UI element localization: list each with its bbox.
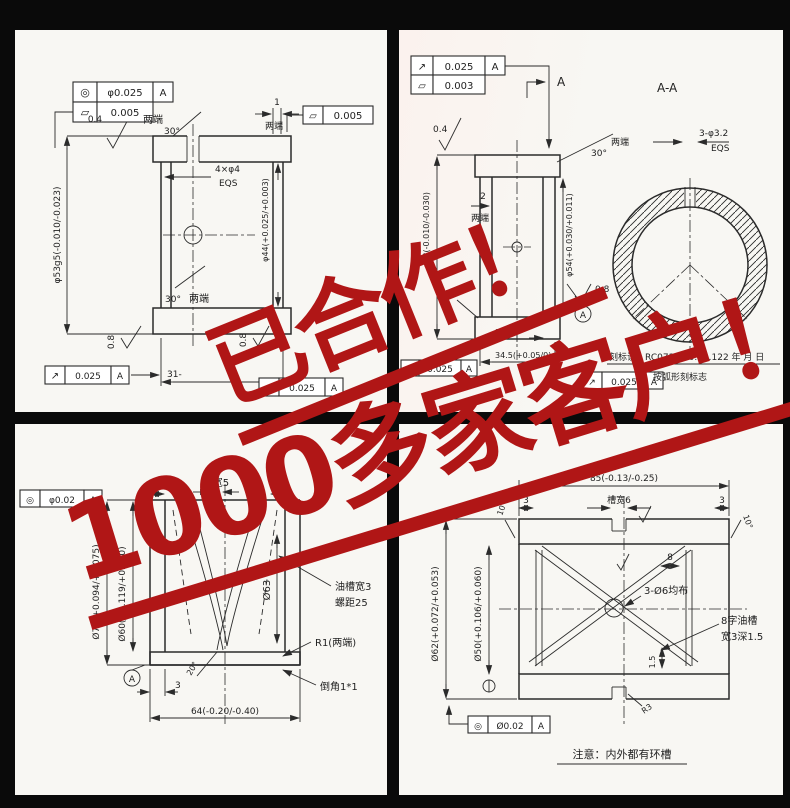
br-groove-width-label: 槽宽6 — [607, 494, 631, 506]
bl-radius-label: R1(两端) — [315, 636, 356, 649]
tr-parallel-tolerance: 0.003 — [445, 81, 474, 92]
bl-groove-diameter: Ø63 — [261, 580, 273, 601]
bl-dim-3: 3 — [175, 681, 181, 691]
bl-datum-balloon-label: A — [129, 675, 136, 685]
tr-datum-balloon-label: A — [580, 311, 587, 321]
tl-holes-callout: 4×φ4 — [215, 165, 240, 175]
tl-chamfer-bottom-angle: 30° — [165, 295, 181, 305]
bl-position-symbol: ◎ — [26, 496, 34, 506]
tl-holes-eqs: EQS — [219, 179, 238, 189]
tl-fcf-position-frame: ◎ φ0.025 A — [73, 82, 173, 102]
bl-oil-groove-line2: 螺距25 — [335, 597, 368, 609]
tl-runout-symbol: ↗ — [51, 371, 59, 382]
br-oil-groove-line2: 宽3深1.5 — [721, 630, 763, 643]
tl-chamfer-top-angle: 30° — [164, 127, 180, 137]
tl-runout-tolerance: 0.025 — [75, 372, 101, 382]
bl-angle-20: 20° — [185, 660, 200, 677]
product-watermarked-drawing-collage: ◎ φ0.025 A ▱ 0.005 ▱ 0.005 ↗ 0.025 A — [0, 0, 790, 808]
tr-parallel-symbol: ▱ — [418, 81, 426, 92]
tl-both-ends-bottom: 两端 — [189, 292, 209, 305]
tl-parallel-tolerance: 0.005 — [111, 108, 140, 119]
tr-section-title: A-A — [657, 81, 678, 95]
tl-position-symbol: ◎ — [80, 86, 90, 99]
tl-position-tolerance: φ0.025 — [107, 88, 142, 99]
tr-runout-symbol: ↗ — [418, 62, 426, 73]
tr-fcf-parallel-frame: ▱ 0.003 — [411, 75, 485, 94]
br-dim-3-right: 3 — [719, 496, 725, 506]
bl-chamfer-label: 倒角1*1 — [320, 681, 358, 693]
tl-fcf-parallel2-frame: ▱ 0.005 — [303, 106, 373, 124]
tl-fcf-runout-left-frame: ↗ 0.025 A — [45, 366, 129, 384]
tr-section-arrow-label: A — [557, 75, 566, 89]
tl-both-ends-top: 两端 — [143, 113, 163, 126]
br-angle-10-right: 10° — [741, 514, 754, 530]
tl-groove-width-dim: 1 — [274, 98, 280, 108]
tl-length-dim: 31- — [167, 370, 182, 380]
br-fcf-position-frame: ◎ Ø0.02 A — [468, 716, 550, 733]
tr-both-ends: 两端 — [611, 136, 629, 148]
tr-fcf-runout-frame: ↗ 0.025 A — [411, 56, 505, 75]
tl-finish-top-value: 0.4 — [88, 115, 103, 125]
tr-chamfer-angle: 30° — [591, 149, 607, 159]
br-position-symbol: ◎ — [474, 722, 482, 732]
br-dim-85: 85(-0.13/-0.25) — [590, 474, 658, 484]
tr-runout-tolerance: 0.025 — [445, 62, 474, 73]
tl-position-datum: A — [160, 88, 167, 99]
br-holes-callout: 3-Ø6均布 — [644, 585, 688, 597]
tr-finish-top-value: 0.4 — [433, 125, 448, 135]
tr-runout-datum: A — [492, 62, 499, 73]
br-dim-8: 8 — [667, 553, 673, 563]
br-radius-label: R3 — [640, 702, 654, 715]
tl-outer-diameter: φ53g5(-0.010/-0.023) — [53, 187, 63, 284]
br-dim-1-5: 1.5 — [648, 656, 657, 669]
br-bore-diameter: Ø50(+0.106/+0.060) — [473, 566, 484, 661]
bl-oil-groove-line1: 油槽宽3 — [335, 580, 371, 593]
br-note-text: 注意：内外都有环槽 — [573, 747, 672, 761]
bl-dim-64: 64(-0.20/-0.40) — [191, 707, 259, 717]
tr-holes-eqs: EQS — [711, 144, 730, 154]
br-oil-groove-line1: 8字油槽 — [721, 614, 757, 627]
br-position-datum: A — [538, 722, 545, 732]
tl-bore-diameter: φ44(+0.025/+0.003) — [261, 178, 270, 262]
tr-holes-callout: 3-φ3.2 — [699, 129, 728, 139]
tl-both-ends-groove: 两端 — [265, 120, 283, 132]
br-outer-diameter: Ø62(+0.072/+0.053) — [430, 566, 441, 661]
br-position-tolerance: Ø0.02 — [496, 721, 523, 732]
tl-parallel2-tolerance: 0.005 — [334, 111, 363, 122]
tl-runout-datum: A — [117, 372, 124, 382]
tr-groove-width-dim: 2 — [480, 192, 486, 202]
tl-finish-left-value: 0.8 — [107, 335, 117, 350]
tl-parallel2-symbol: ▱ — [309, 111, 317, 122]
tl-fcf-parallel-frame: ▱ 0.005 — [73, 102, 153, 122]
